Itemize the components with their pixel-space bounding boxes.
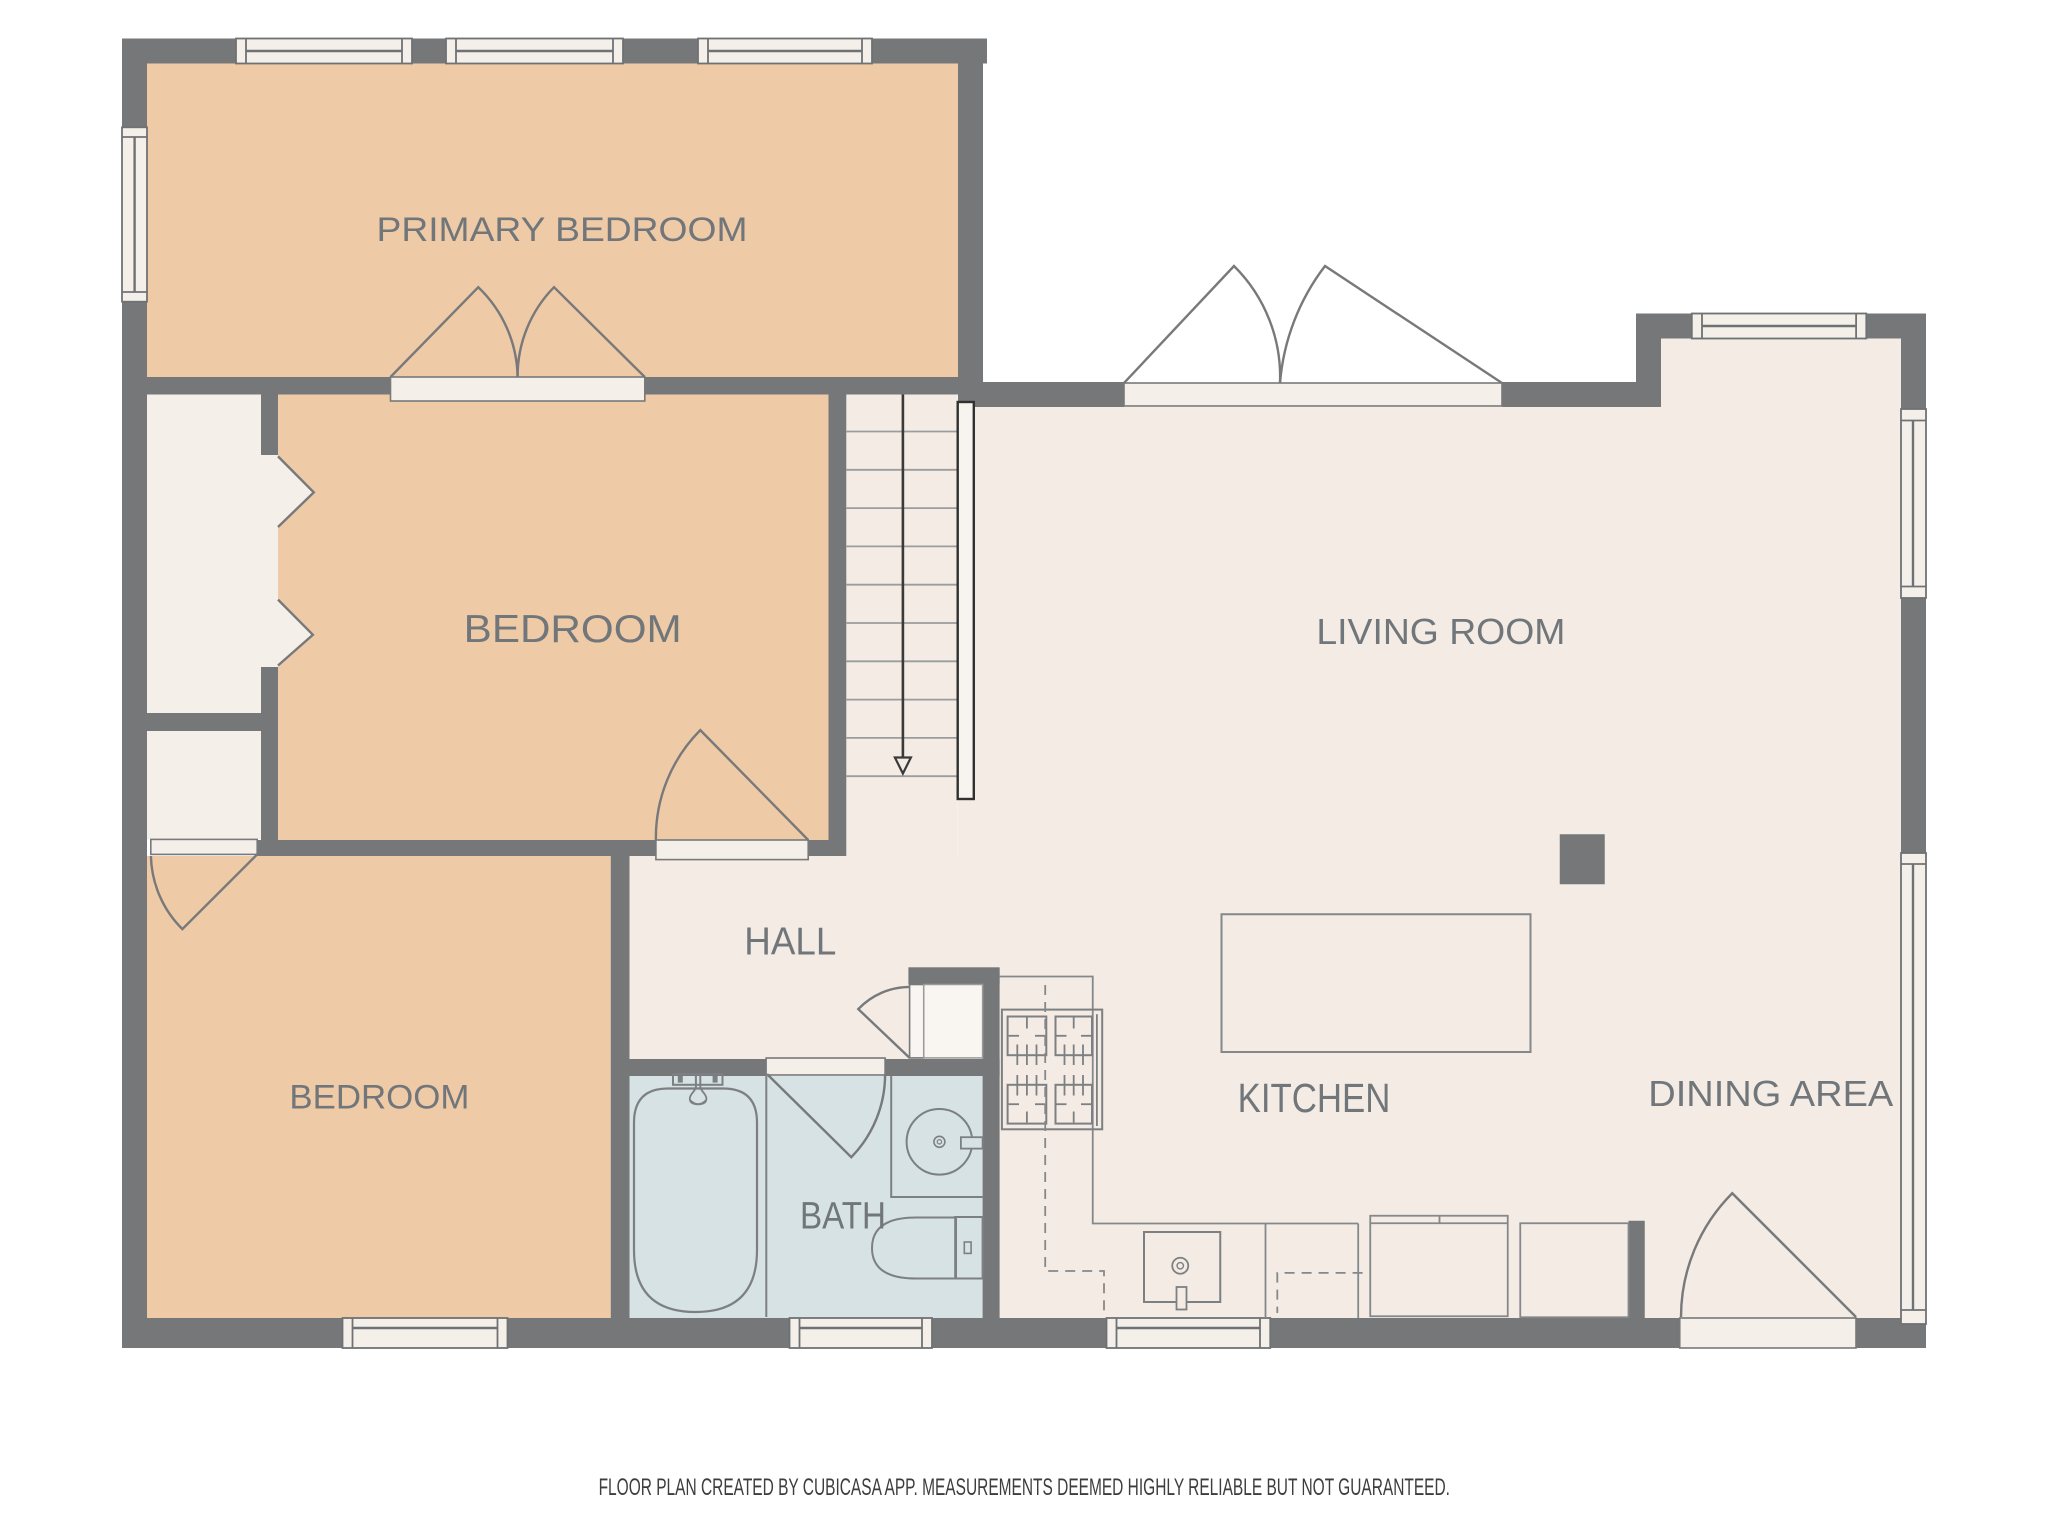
svg-text:KITCHEN: KITCHEN	[1238, 1075, 1391, 1121]
svg-text:PRIMARY BEDROOM: PRIMARY BEDROOM	[377, 211, 748, 249]
svg-text:FLOOR PLAN CREATED BY CUBICASA: FLOOR PLAN CREATED BY CUBICASA APP. MEAS…	[599, 1474, 1450, 1501]
svg-text:BEDROOM: BEDROOM	[289, 1079, 469, 1117]
svg-text:BEDROOM: BEDROOM	[464, 608, 682, 651]
svg-text:BATH: BATH	[800, 1196, 886, 1238]
svg-text:LIVING ROOM: LIVING ROOM	[1316, 611, 1565, 652]
svg-text:HALL: HALL	[744, 921, 836, 964]
svg-text:DINING AREA: DINING AREA	[1648, 1073, 1893, 1114]
